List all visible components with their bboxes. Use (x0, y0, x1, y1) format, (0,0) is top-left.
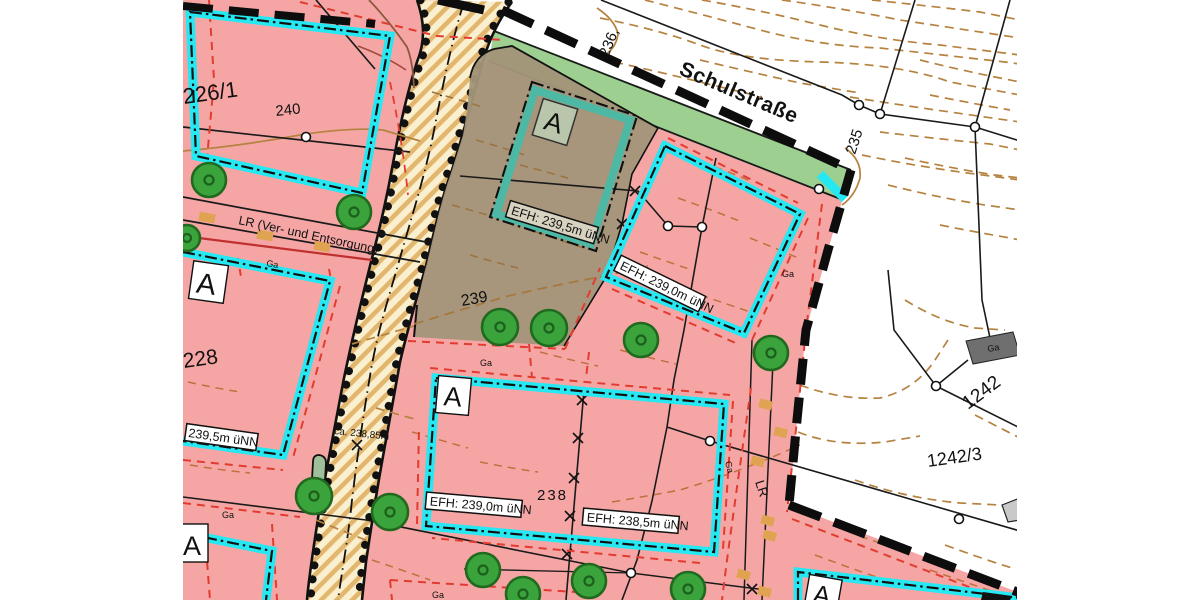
svg-text:Ga: Ga (266, 258, 280, 270)
svg-text:Ga: Ga (987, 342, 1001, 354)
svg-text:240: 240 (275, 100, 302, 120)
svg-text:Ga: Ga (222, 510, 234, 520)
svg-text:228: 228 (181, 345, 219, 373)
svg-text:Ga: Ga (480, 358, 492, 368)
svg-text:Ga: Ga (782, 269, 794, 279)
svg-text:A: A (183, 531, 201, 561)
svg-text:238: 238 (537, 487, 568, 504)
svg-text:A: A (443, 381, 464, 412)
svg-text:Ga: Ga (432, 590, 444, 600)
